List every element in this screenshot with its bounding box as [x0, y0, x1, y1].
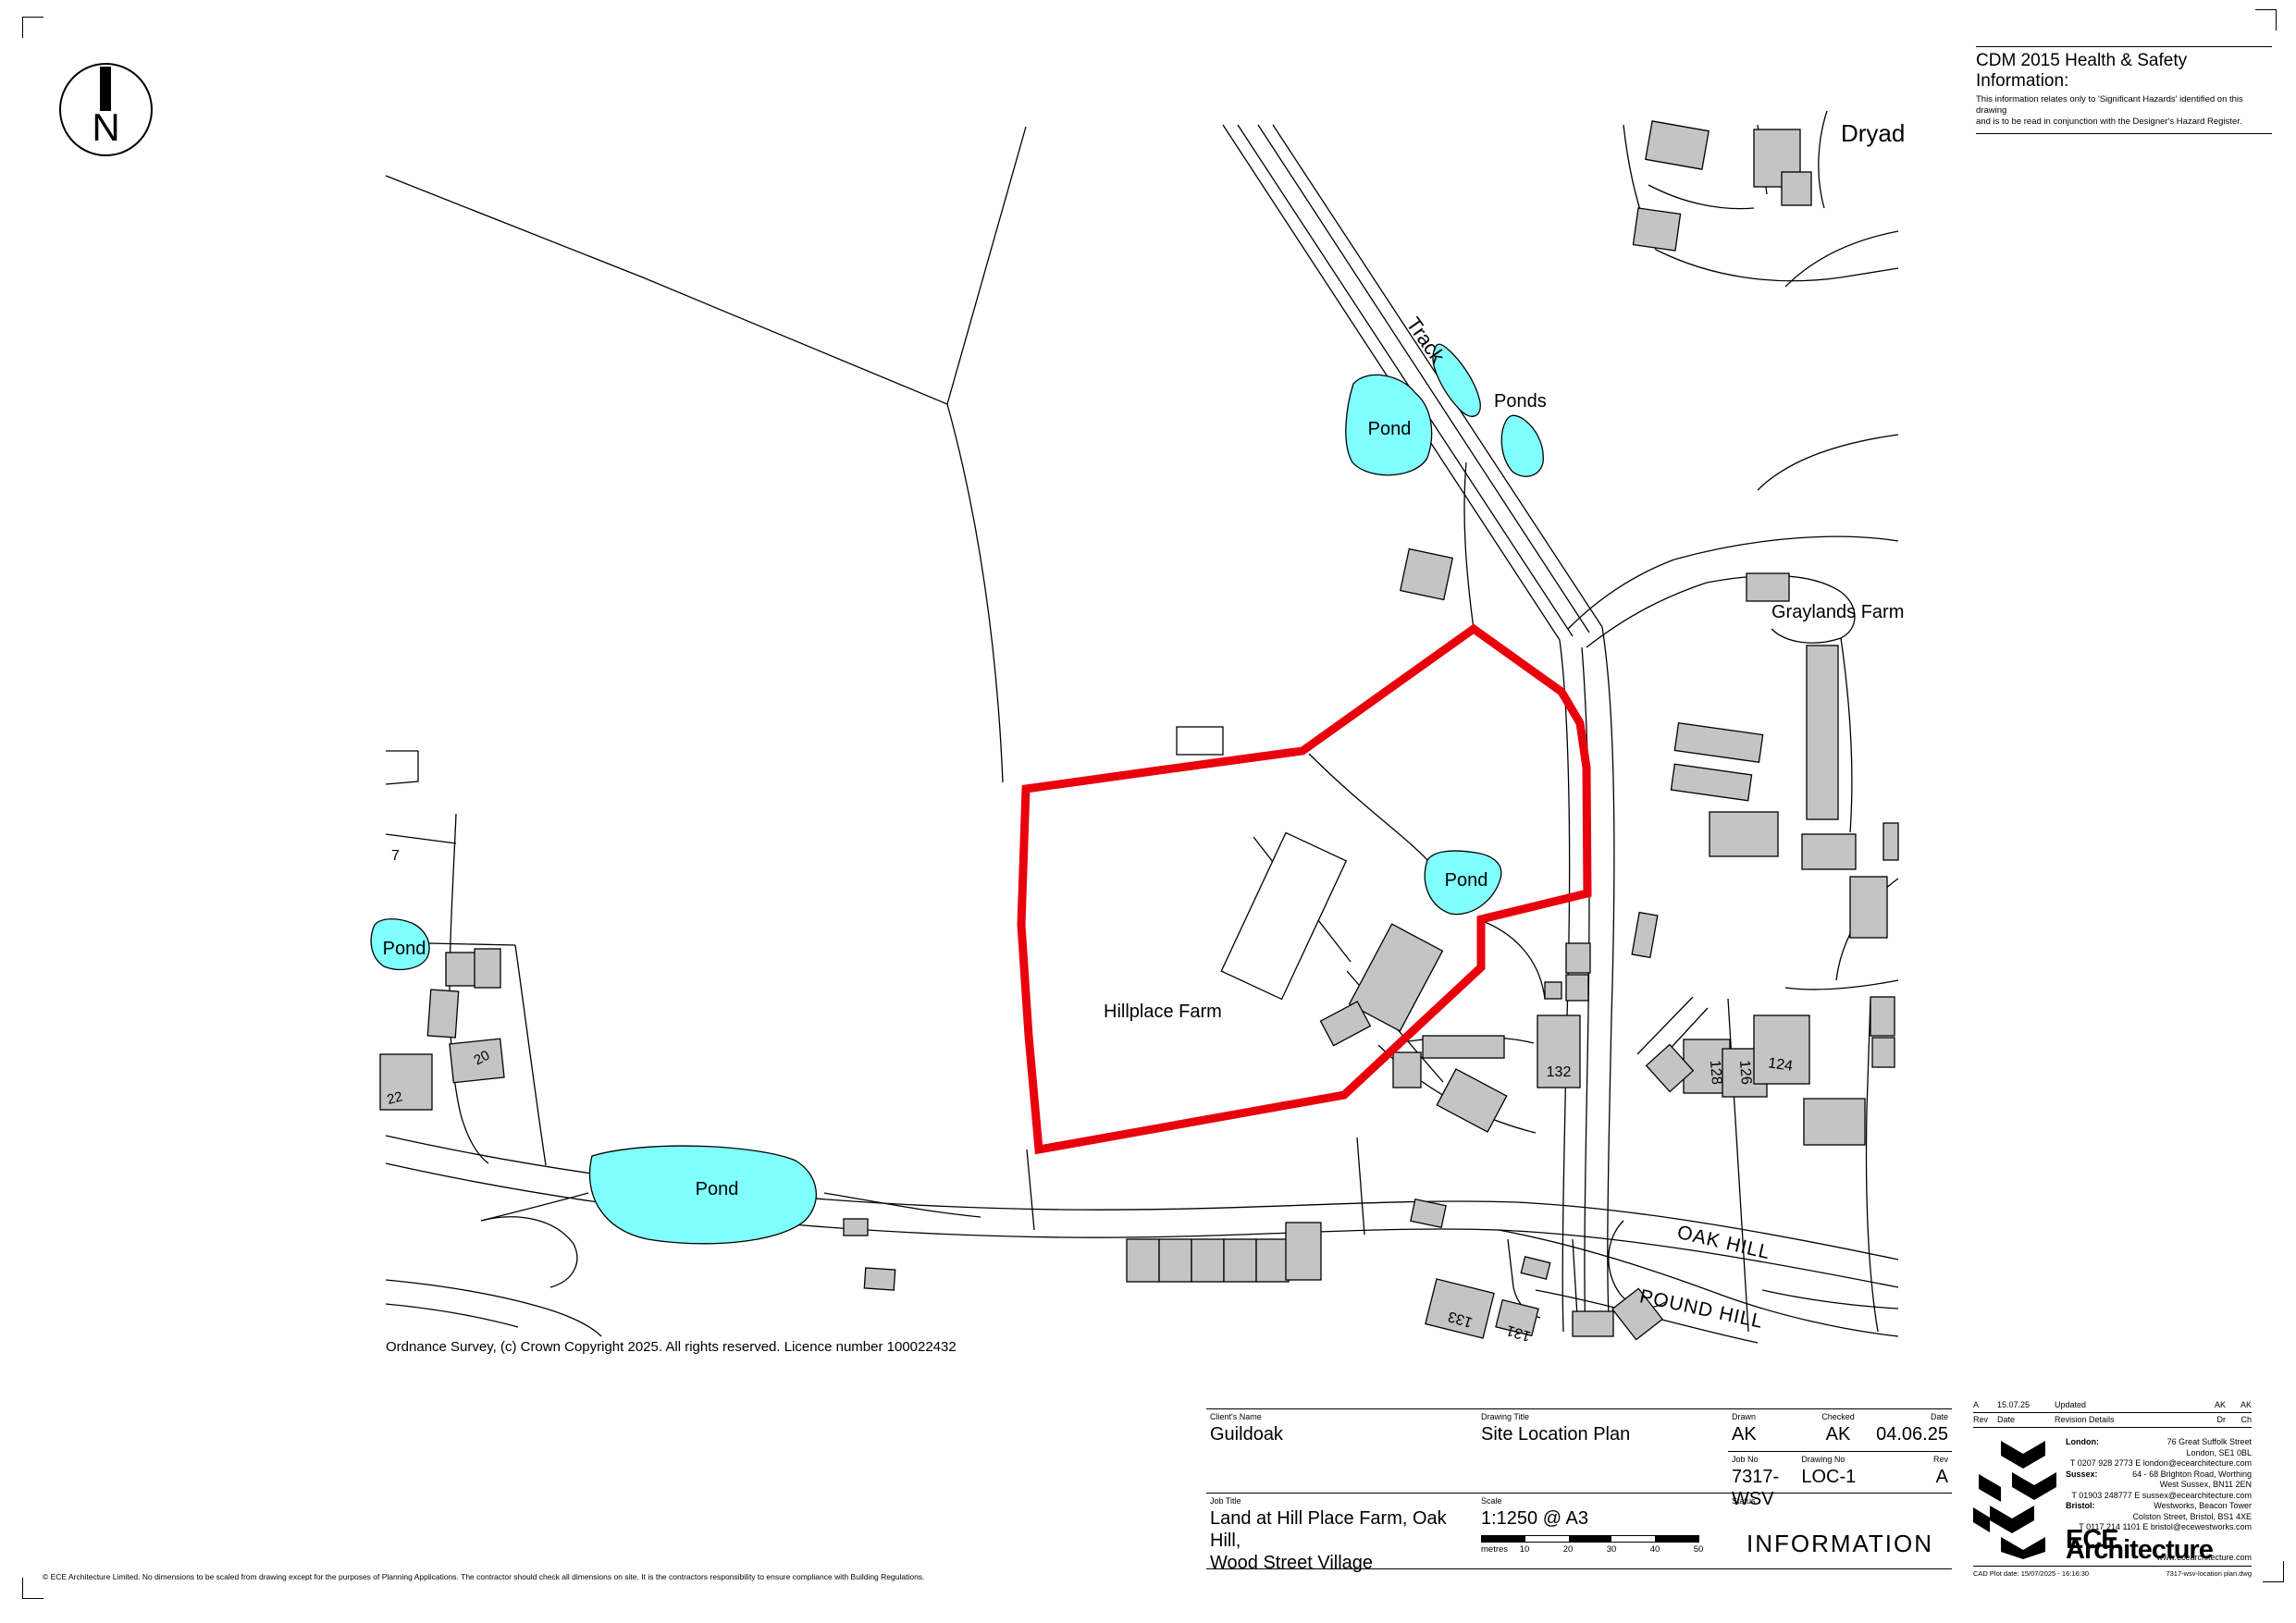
building [1782, 172, 1811, 205]
building [1671, 764, 1751, 800]
date-label: Date [1875, 1409, 1948, 1421]
map-label-oak-hill: OAK HILL [1675, 1222, 1772, 1263]
building [1423, 1036, 1504, 1058]
map-line [1464, 462, 1474, 629]
titleblock-drawing-column: Drawing Title Site Location Plan Scale 1… [1477, 1408, 1728, 1569]
building [1754, 1015, 1809, 1084]
office-bristol-label: Bristol: [2066, 1501, 2095, 1512]
drawing-no-cell: Drawing No LOC-1 [1801, 1452, 1874, 1510]
revision-details: Updated [2055, 1398, 2194, 1412]
checked-label: Checked [1801, 1409, 1874, 1421]
office-london-line1: 76 Great Suffolk Street [2099, 1437, 2252, 1448]
office-sussex-row: Sussex:64 - 68 Brighton Road, Worthing [2066, 1469, 2252, 1481]
checked-cell: Checked AK [1801, 1409, 1874, 1445]
revision-header-row: Rev Date Revision Details Dr Ch [1973, 1413, 2252, 1427]
scale-bar: metres 10 20 30 40 50 [1481, 1535, 1699, 1559]
building [1883, 823, 1898, 860]
titleblock-client-column: Client's Name Guildoak Job Title Land at… [1206, 1408, 1477, 1569]
map-line [947, 127, 1026, 404]
map-line [1480, 920, 1545, 999]
scale-bar-tick: 20 [1563, 1544, 1574, 1555]
titleblock-status-column: Drawn AK Checked AK Date 04.06.25 Job No… [1728, 1408, 1952, 1569]
office-sussex-label: Sussex: [2066, 1469, 2098, 1481]
site-location-map: Dryad Track Pond Ponds Graylands Farm Hi… [0, 0, 2296, 1623]
office-bristol-line1: Westworks, Beacon Tower [2095, 1501, 2253, 1512]
map-line [1785, 980, 1898, 990]
map-line [1841, 638, 1852, 832]
building-outline [1221, 832, 1346, 999]
revision-ch: AK [2226, 1398, 2252, 1412]
drawn-cell: Drawn AK [1728, 1409, 1801, 1445]
map-line [1674, 536, 1898, 559]
building [864, 1268, 895, 1290]
building [1646, 121, 1709, 169]
building [844, 1219, 868, 1236]
building [1566, 943, 1590, 973]
map-line [1602, 627, 1614, 1332]
drawn-label: Drawn [1728, 1409, 1801, 1421]
map-line [1238, 125, 1573, 636]
building [1633, 208, 1680, 251]
date-value: 04.06.25 [1875, 1421, 1948, 1445]
plot-info-row: CAD Plot date: 15/07/2025 - 16:16:30 731… [1973, 1566, 2252, 1578]
map-line [386, 751, 418, 784]
scale-bar-tick: 40 [1650, 1544, 1660, 1555]
job-title-line2: Wood Street Village [1210, 1553, 1373, 1573]
os-copyright: Ordnance Survey, (c) Crown Copyright 202… [386, 1339, 957, 1355]
building [1850, 877, 1887, 938]
map-line [1648, 185, 1754, 209]
revision-header-rev: Rev [1973, 1413, 1997, 1427]
building [1411, 1199, 1446, 1228]
building [1872, 1038, 1895, 1067]
map-line [1762, 1290, 1898, 1309]
map-line [450, 814, 488, 1163]
rev-label: Rev [1875, 1452, 1948, 1464]
map-line [947, 404, 1003, 782]
date-cell: Date 04.06.25 [1875, 1409, 1952, 1445]
revision-dr: AK [2194, 1398, 2226, 1412]
drawing-sheet: { "page": { "north_label": "N", "cdm": {… [0, 0, 2296, 1623]
building [1545, 982, 1562, 999]
scale-bar-segments [1481, 1535, 1699, 1543]
client-name-label: Client's Name [1206, 1409, 1477, 1421]
job-title-cell: Job Title Land at Hill Place Farm, Oak H… [1206, 1493, 1477, 1569]
office-london-line3: T 0207 928 2773 E london@ecearchitecture… [2066, 1458, 2252, 1469]
map-line [481, 1217, 577, 1287]
revision-header-details: Revision Details [2055, 1413, 2194, 1427]
client-name-value: Guildoak [1206, 1421, 1477, 1445]
revision-header-date: Date [1997, 1413, 2055, 1427]
revision-rev: A [1973, 1398, 1997, 1412]
scale-bar-segment [1525, 1536, 1569, 1542]
client-name-cell: Client's Name Guildoak [1206, 1409, 1477, 1493]
scale-label: Scale [1477, 1494, 1728, 1506]
map-line [1785, 231, 1898, 287]
map-line [428, 943, 515, 945]
footer-disclaimer: © ECE Architecture Limited. No dimension… [43, 1572, 924, 1581]
map-line [515, 945, 546, 1165]
drawing-title-cell: Drawing Title Site Location Plan [1477, 1409, 1728, 1493]
building [1426, 1279, 1494, 1338]
map-line [386, 1304, 518, 1327]
scale-cell: Scale 1:1250 @ A3 metres 10 20 30 40 50 [1477, 1493, 1728, 1569]
drawn-checked-date-row: Drawn AK Checked AK Date 04.06.25 [1728, 1409, 1952, 1451]
scale-bar-tick: 50 [1694, 1544, 1704, 1555]
office-sussex-line1: 64 - 68 Brighton Road, Worthing [2098, 1469, 2252, 1481]
map-line [481, 1193, 588, 1221]
building [1804, 1099, 1865, 1145]
building [1521, 1257, 1550, 1279]
map-line [1586, 583, 1707, 647]
map-label-graylands-farm: Graylands Farm [1771, 602, 1904, 622]
office-london-line2: London, SE1 0BL [2066, 1448, 2252, 1459]
building [427, 990, 458, 1038]
map-label-dryad: Dryad [1841, 119, 1905, 147]
building [1401, 549, 1453, 600]
ece-logo-icon [1973, 1437, 2066, 1562]
map-label-126: 126 [1736, 1060, 1754, 1086]
building [1802, 834, 1856, 869]
map-label-132: 132 [1547, 1064, 1572, 1080]
office-bristol-line2: Colston Street, Bristol, BS1 4XE [2066, 1512, 2252, 1523]
drawing-title-value: Site Location Plan [1477, 1421, 1728, 1445]
pond-shape [1501, 415, 1543, 476]
office-london-label: London: [2066, 1437, 2099, 1448]
scale-value: 1:1250 @ A3 [1477, 1506, 1728, 1530]
job-title-label: Job Title [1206, 1494, 1477, 1506]
scale-bar-unit: metres [1481, 1544, 1508, 1555]
map-line [824, 1193, 981, 1217]
building [1573, 1311, 1613, 1336]
map-line [1758, 435, 1898, 490]
map-line [386, 176, 947, 404]
status-value: INFORMATION [1728, 1530, 1952, 1558]
map-line [1656, 250, 1898, 281]
logo-and-addresses: London:76 Great Suffolk Street London, S… [1973, 1437, 2252, 1562]
map-label-128: 128 [1707, 1060, 1724, 1086]
revision-header-ch: Ch [2226, 1413, 2252, 1427]
scale-bar-tick: 10 [1520, 1544, 1530, 1555]
building [1437, 1069, 1506, 1132]
office-sussex-line2: West Sussex, BN11 2EN [2066, 1480, 2252, 1491]
office-bristol-row: Bristol:Westworks, Beacon Tower [2066, 1501, 2252, 1512]
divider [1973, 1427, 2252, 1428]
map-line [1027, 1150, 1034, 1230]
building [475, 949, 500, 988]
building [1747, 573, 1789, 601]
map-line [1819, 111, 1827, 208]
revision-entry-row: A 15.07.25 Updated AK AK [1973, 1398, 2252, 1412]
rev-cell: Rev A [1875, 1452, 1952, 1510]
office-addresses: London:76 Great Suffolk Street London, S… [2066, 1437, 2252, 1562]
building [1870, 997, 1895, 1036]
building-outline [1177, 727, 1223, 755]
revision-date: 15.07.25 [1997, 1398, 2055, 1412]
scale-bar-segment [1482, 1536, 1525, 1542]
cad-plot-date: CAD Plot date: 15/07/2025 - 16:16:30 [1973, 1569, 2166, 1578]
map-line [386, 834, 456, 843]
building [1127, 1239, 1159, 1282]
office-sussex-line3: T 01903 248777 E sussex@ecearchitecture.… [2066, 1491, 2252, 1502]
jobno-drawingno-rev-row: Job No 7317-WSV Drawing No LOC-1 Rev A [1728, 1451, 1952, 1493]
drawing-no-label: Drawing No [1801, 1452, 1874, 1464]
building [1159, 1239, 1191, 1282]
map-label-7: 7 [391, 848, 400, 864]
office-london-row: London:76 Great Suffolk Street [2066, 1437, 2252, 1448]
titleblock-revision-logo-column: A 15.07.25 Updated AK AK Rev Date Revisi… [1973, 1398, 2252, 1578]
building [1191, 1239, 1224, 1282]
map-line [1568, 559, 1674, 629]
building [446, 953, 476, 986]
building [1224, 1239, 1256, 1282]
drawn-value: AK [1728, 1421, 1801, 1445]
scale-bar-segment [1569, 1536, 1612, 1542]
building [1807, 646, 1838, 819]
revision-header-dr: Dr [2194, 1413, 2226, 1427]
map-label-pond: Pond [1368, 419, 1412, 439]
scale-bar-segment [1611, 1536, 1655, 1542]
dwg-file-name: 7317-wsv-location plan.dwg [2166, 1569, 2252, 1578]
rev-value: A [1875, 1464, 1948, 1488]
job-no-label: Job No [1728, 1452, 1801, 1464]
checked-value: AK [1801, 1421, 1874, 1445]
map-label-pond: Pond [1445, 870, 1488, 891]
building [1256, 1239, 1289, 1282]
map-label-ponds: Ponds [1494, 391, 1547, 412]
map-label-pond: Pond [696, 1179, 739, 1199]
building [1674, 723, 1762, 763]
building [1566, 975, 1588, 1001]
scale-bar-tick: 30 [1607, 1544, 1617, 1555]
building [1632, 913, 1658, 958]
building [1286, 1223, 1321, 1280]
map-label-hillplace-farm: Hillplace Farm [1104, 1002, 1222, 1022]
building [1710, 812, 1778, 856]
map-line [1309, 754, 1427, 860]
job-title-line1: Land at Hill Place Farm, Oak Hill, [1210, 1508, 1447, 1551]
building [1393, 1052, 1421, 1088]
job-title-value: Land at Hill Place Farm, Oak Hill,Wood S… [1206, 1506, 1477, 1574]
drawing-no-value: LOC-1 [1801, 1464, 1874, 1488]
map-line [1357, 1137, 1364, 1235]
drawing-title-label: Drawing Title [1477, 1409, 1728, 1421]
scale-bar-segment [1655, 1536, 1698, 1542]
ponds [371, 344, 1543, 1244]
map-label-pond: Pond [383, 939, 426, 959]
